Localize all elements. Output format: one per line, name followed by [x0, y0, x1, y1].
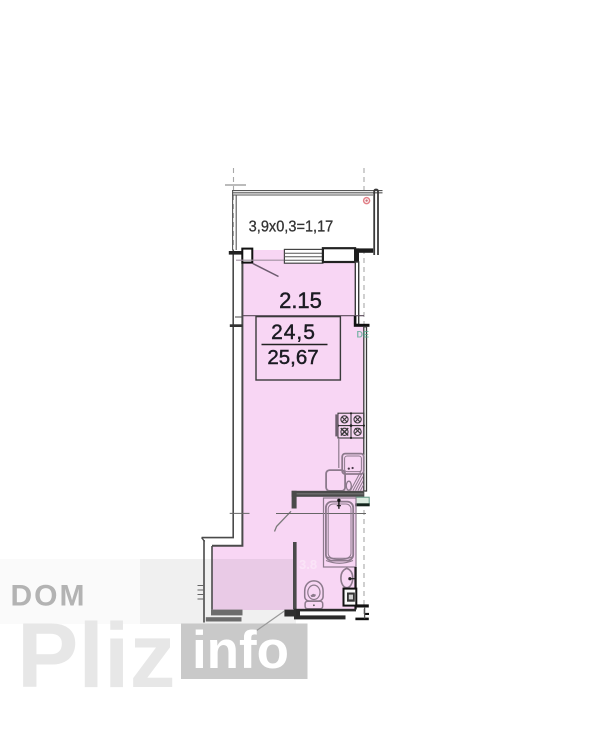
svg-text:DE: DE — [357, 330, 370, 340]
svg-text:3.8: 3.8 — [299, 557, 317, 572]
svg-text:2.15: 2.15 — [279, 288, 322, 313]
svg-text:info: info — [192, 621, 289, 680]
svg-text:3,9x0,3=1,17: 3,9x0,3=1,17 — [249, 218, 334, 236]
svg-text:Pliz: Pliz — [17, 605, 175, 707]
svg-text:24,5: 24,5 — [271, 321, 316, 344]
svg-text:25,67: 25,67 — [267, 346, 318, 369]
